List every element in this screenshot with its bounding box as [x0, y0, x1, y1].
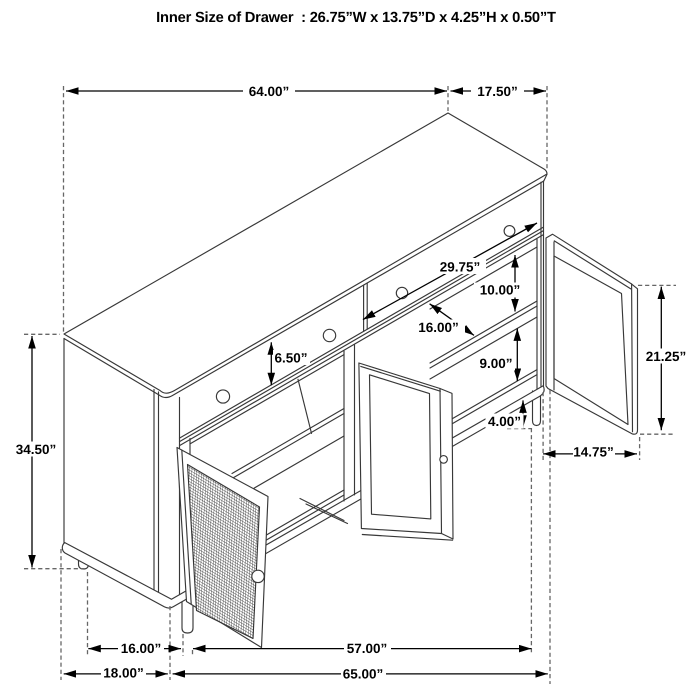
svg-text:6.50”: 6.50” — [274, 350, 307, 365]
svg-text:4.00”: 4.00” — [488, 414, 521, 429]
svg-text:65.00”: 65.00” — [343, 667, 384, 682]
svg-text:16.00”: 16.00” — [418, 320, 459, 335]
svg-text:Inner Size of Drawer : 26.75”: Inner Size of Drawer : 26.75”W x 13.75”D… — [156, 10, 556, 26]
svg-text:16.00”: 16.00” — [121, 641, 162, 656]
svg-text:9.00”: 9.00” — [479, 356, 512, 371]
svg-text:29.75”: 29.75” — [440, 259, 481, 274]
svg-text:34.50”: 34.50” — [16, 442, 57, 457]
svg-text:18.00”: 18.00” — [103, 665, 144, 680]
svg-text:10.00”: 10.00” — [480, 283, 521, 298]
svg-text:14.75”: 14.75” — [573, 444, 614, 459]
svg-text:64.00”: 64.00” — [249, 84, 290, 99]
svg-text:17.50”: 17.50” — [477, 84, 518, 99]
svg-text:21.25”: 21.25” — [646, 349, 687, 364]
svg-text:57.00”: 57.00” — [347, 641, 388, 656]
